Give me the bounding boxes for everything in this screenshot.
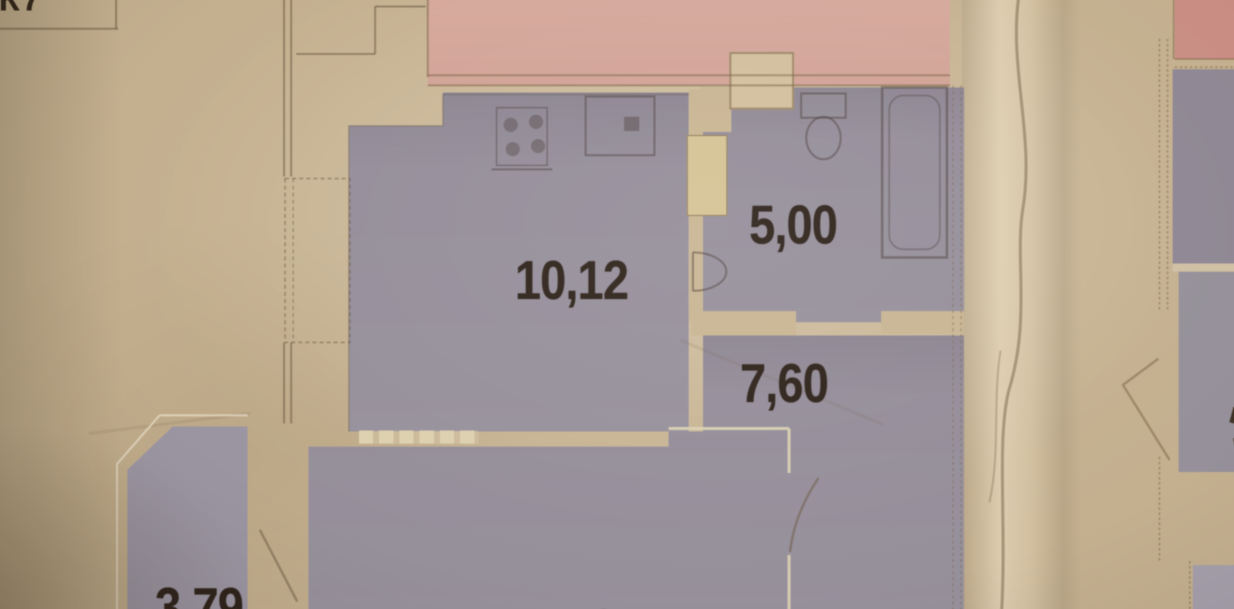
sink-icon <box>586 97 655 156</box>
area-label-bathroom: 5,00 <box>749 194 837 257</box>
building-outline-left <box>0 0 426 423</box>
area-label-hallway: 7,60 <box>740 353 828 416</box>
photo-layer: 10,12 5,00 7,60 3,79 15,65 К7 <box>0 0 1234 609</box>
balcony-door-leaf <box>260 530 297 602</box>
corner-plan-text: К7 <box>0 0 43 20</box>
area-label-balcony: 3,79 <box>155 576 243 609</box>
hall-door-leaf <box>790 478 818 552</box>
floor-plan-photo: 10,12 5,00 7,60 3,79 15,65 К7 <box>0 0 1234 609</box>
bathtub-icon <box>882 87 947 257</box>
stove-icon <box>492 108 553 170</box>
toilet-icon <box>801 93 846 159</box>
outer-wall-dotted-right <box>953 85 961 609</box>
neighbor-unit-walls <box>1123 0 1234 609</box>
top-wall-lines <box>428 0 950 85</box>
hall-living-partition <box>669 428 789 609</box>
area-label-kitchen: 10,12 <box>515 249 628 312</box>
shaft-dashed-outline <box>285 179 350 343</box>
area-label-living-room: 15,65 <box>527 598 640 609</box>
washbasin-icon <box>693 252 726 290</box>
